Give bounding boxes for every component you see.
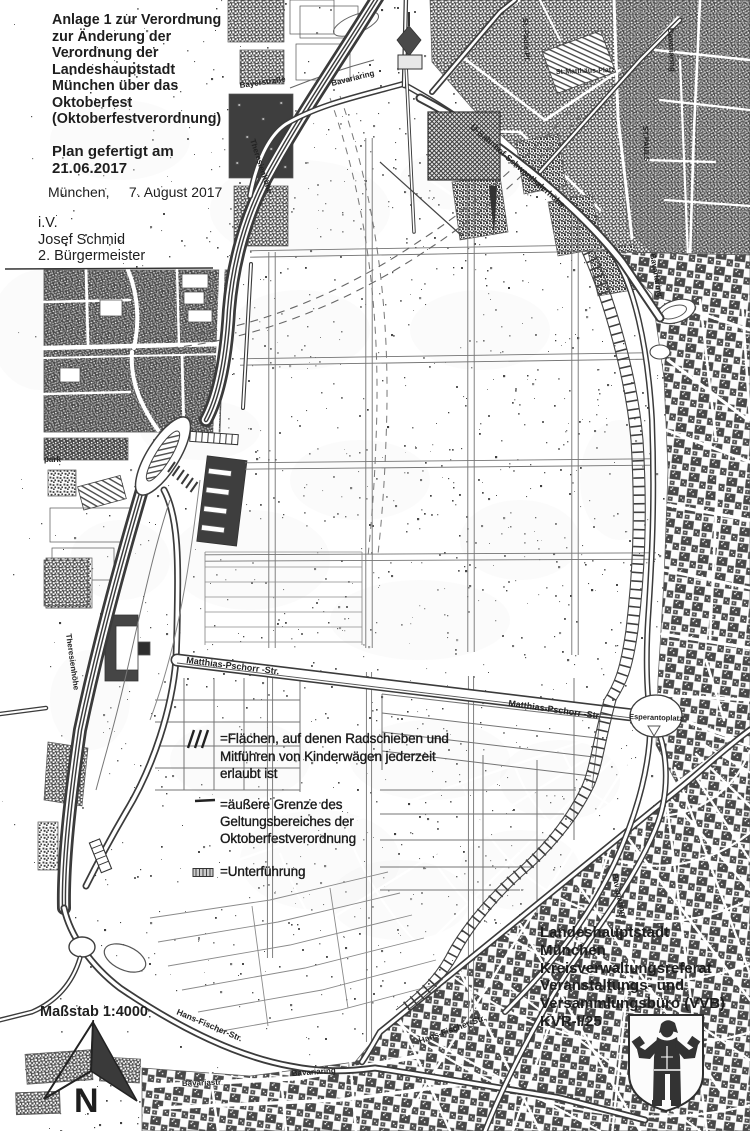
svg-text:park: park bbox=[44, 455, 61, 464]
svg-text:ST.PAULS: ST.PAULS bbox=[641, 126, 651, 162]
svg-text:Bavariastr: Bavariastr bbox=[182, 1078, 221, 1088]
svg-text:St.-Pauls-Pl.: St.-Pauls-Pl. bbox=[521, 18, 532, 62]
svg-text:Esperantoplatz: Esperantoplatz bbox=[629, 712, 683, 723]
